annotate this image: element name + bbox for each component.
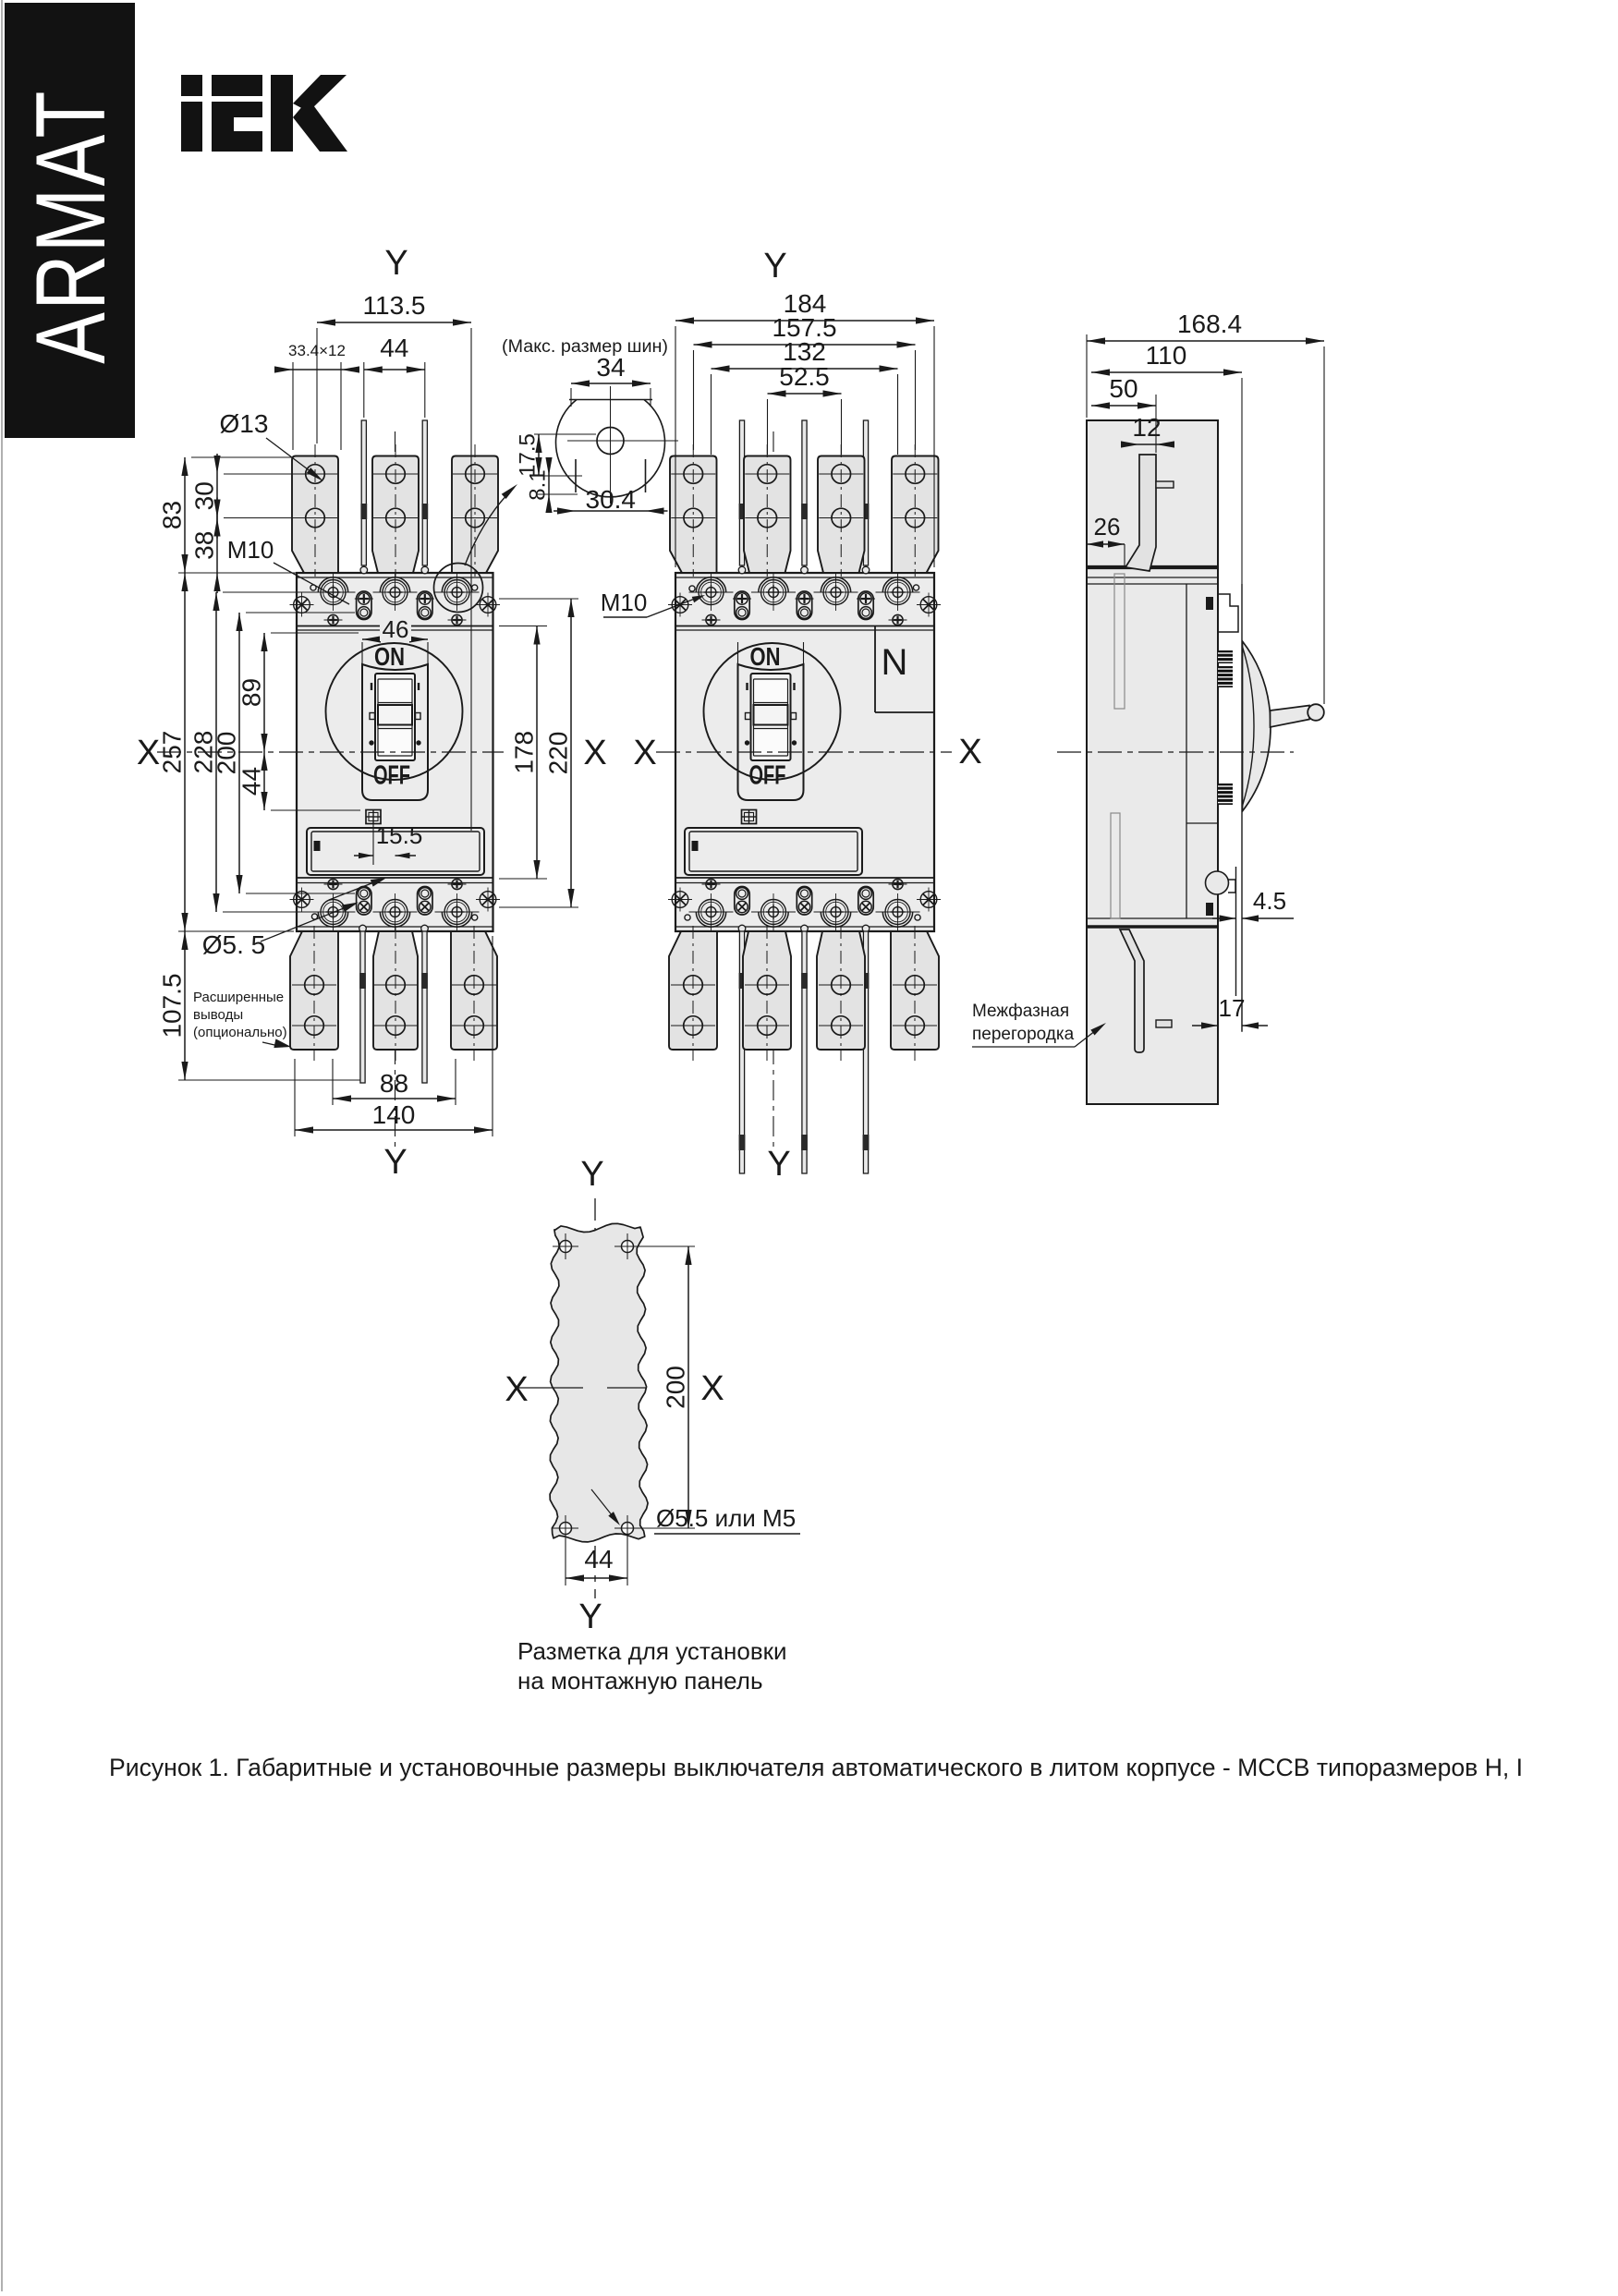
svg-text:Y: Y [763,247,786,285]
svg-text:ON: ON [374,642,405,671]
svg-text:Ø5. 5: Ø5. 5 [202,930,265,959]
svg-text:200: 200 [662,1366,690,1409]
svg-text:ARMAT: ARMAT [16,89,126,364]
svg-text:X: X [958,733,981,771]
svg-text:44: 44 [584,1545,613,1573]
svg-text:Y: Y [384,244,408,283]
svg-text:Рисунок 1. Габаритные и устано: Рисунок 1. Габаритные и установочные раз… [109,1754,1523,1781]
svg-text:168.4: 168.4 [1177,310,1242,338]
svg-text:110: 110 [1146,341,1187,370]
svg-text:44: 44 [380,334,408,362]
svg-text:M10: M10 [227,536,274,564]
svg-text:на монтажную панель: на монтажную панель [517,1667,763,1695]
svg-text:4.5: 4.5 [1253,887,1286,915]
svg-text:52.5: 52.5 [779,362,830,391]
svg-text:46: 46 [383,615,409,643]
svg-text:OFF: OFF [749,761,786,791]
svg-text:88: 88 [380,1069,408,1098]
svg-text:113.5: 113.5 [363,291,426,320]
svg-text:X: X [583,734,606,772]
svg-text:30: 30 [190,481,219,510]
svg-text:Ø5.5 или М5: Ø5.5 или М5 [656,1504,796,1532]
svg-text:Y: Y [578,1597,602,1636]
svg-text:178: 178 [510,731,539,774]
svg-text:44: 44 [237,767,266,796]
svg-text:140: 140 [372,1100,416,1129]
svg-text:Разметка для установки: Разметка для установки [517,1637,787,1665]
svg-text:107.5: 107.5 [158,973,187,1038]
svg-text:257: 257 [158,731,187,774]
svg-text:Ø13: Ø13 [220,409,269,438]
svg-text:(Макс. размер шин): (Макс. размер шин) [502,337,668,357]
svg-text:83: 83 [158,501,187,529]
svg-text:30.4: 30.4 [586,485,637,514]
svg-text:15.5: 15.5 [376,821,423,849]
svg-text:89: 89 [237,678,266,707]
svg-text:Межфазная: Межфазная [972,1002,1069,1021]
svg-text:X: X [633,734,656,772]
svg-text:Y: Y [767,1145,790,1184]
svg-text:12: 12 [1132,413,1161,442]
svg-text:8.1: 8.1 [526,469,551,500]
svg-text:33.4×12: 33.4×12 [288,342,346,359]
svg-text:X: X [505,1370,528,1409]
svg-text:(опционально): (опционально) [193,1025,287,1040]
svg-text:Y: Y [383,1143,407,1182]
svg-text:X: X [700,1369,724,1408]
svg-text:34: 34 [596,353,625,382]
svg-text:ON: ON [750,642,781,671]
svg-text:выводы: выводы [193,1007,243,1023]
svg-text:220: 220 [544,732,573,775]
svg-text:N: N [882,642,908,683]
svg-text:38: 38 [190,531,219,560]
svg-text:M10: M10 [601,589,648,616]
svg-text:X: X [137,734,160,772]
svg-text:Расширенные: Расширенные [193,990,284,1005]
svg-text:Y: Y [580,1155,603,1194]
svg-text:17: 17 [1219,994,1246,1022]
svg-text:50: 50 [1109,374,1137,403]
svg-text:OFF: OFF [373,761,410,791]
svg-text:26: 26 [1094,513,1121,541]
svg-text:перегородка: перегородка [972,1025,1075,1044]
